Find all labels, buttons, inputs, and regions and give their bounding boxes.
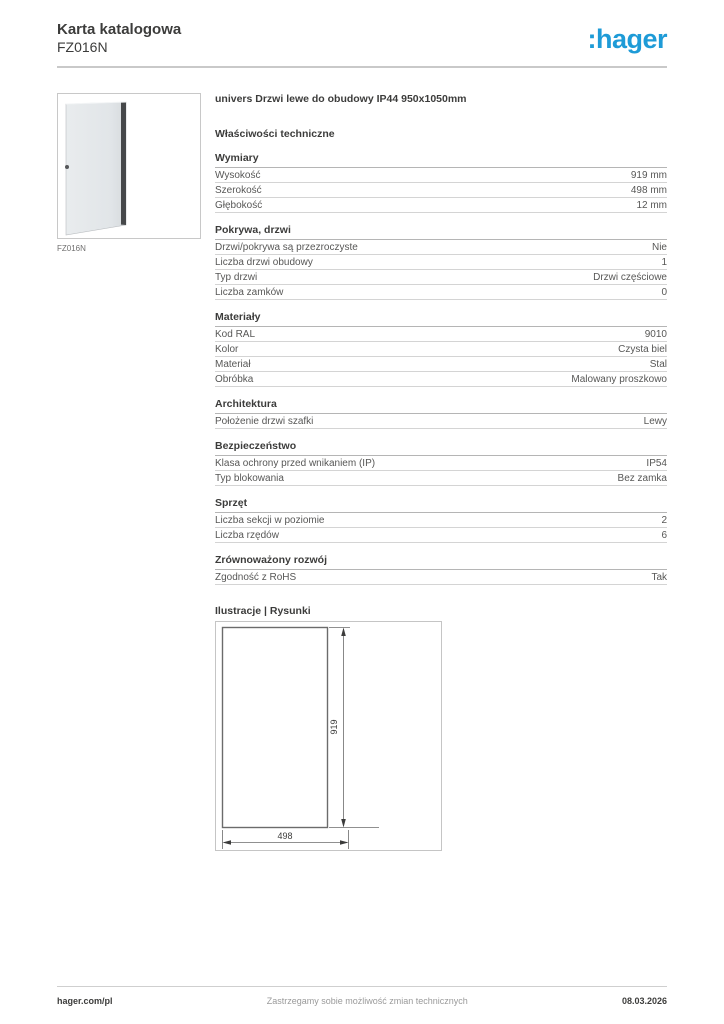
spec-label: Obróbka [215,374,253,385]
spec-label: Kolor [215,344,238,355]
spec-section: BezpieczeństwoKlasa ochrony przed wnikan… [215,440,667,486]
spec-label: Położenie drzwi szafki [215,416,313,427]
spec-label: Szerokość [215,185,262,196]
spec-section-title: Zrównoważony rozwój [215,554,667,570]
datasheet-page: Karta katalogowa FZ016N :hager [0,0,724,1024]
technical-drawing: 919 498 [215,621,442,851]
footer: hager.com/pl Zastrzegamy sobie możliwość… [57,986,667,1006]
door-panel-illustration [58,94,200,238]
spec-label: Liczba sekcji w poziomie [215,515,325,526]
details-column: univers Drzwi lewe do obudowy IP44 950x1… [215,93,667,851]
product-code: FZ016N [57,39,181,56]
spec-section: ArchitekturaPołożenie drzwi szafkiLewy [215,398,667,429]
footer-disclaimer: Zastrzegamy sobie możliwość zmian techni… [267,996,468,1006]
spec-label: Liczba rzędów [215,530,279,541]
spec-row: Typ drzwiDrzwi częściowe [215,270,667,285]
illustrations-heading: Ilustracje | Rysunki [215,605,667,618]
spec-row: ObróbkaMalowany proszkowo [215,372,667,387]
spec-row: Klasa ochrony przed wnikaniem (IP)IP54 [215,456,667,471]
spec-section: Pokrywa, drzwiDrzwi/pokrywa są przezrocz… [215,224,667,300]
spec-label: Kod RAL [215,329,255,340]
footer-row: hager.com/pl Zastrzegamy sobie możliwość… [57,996,667,1006]
spec-value: 9010 [645,329,667,340]
spec-label: Typ blokowania [215,473,284,484]
spec-row: Szerokość498 mm [215,183,667,198]
spec-row: Wysokość919 mm [215,168,667,183]
spec-value: 1 [661,257,667,268]
product-title: univers Drzwi lewe do obudowy IP44 950x1… [215,93,667,106]
spec-value: Bez zamka [618,473,667,484]
spec-value: Drzwi częściowe [593,272,667,283]
spec-value: Nie [652,242,667,253]
spec-section: MateriałyKod RAL9010KolorCzysta bielMate… [215,311,667,387]
spec-row: Kod RAL9010 [215,327,667,342]
main-content: FZ016N univers Drzwi lewe do obudowy IP4… [57,93,667,851]
spec-value: Stal [650,359,667,370]
product-image-column: FZ016N [57,93,201,851]
spec-section: Zrównoważony rozwójZgodność z RoHSTak [215,554,667,585]
spec-value: Lewy [644,416,667,427]
spec-value: 919 mm [631,170,667,181]
header-divider [57,66,667,68]
page-title: Karta katalogowa [57,21,181,39]
spec-label: Liczba drzwi obudowy [215,257,313,268]
footer-date: 08.03.2026 [622,996,667,1006]
spec-row: Liczba drzwi obudowy1 [215,255,667,270]
spec-row: Liczba sekcji w poziomie2 [215,513,667,528]
header-titles: Karta katalogowa FZ016N [57,21,181,56]
spec-row: Położenie drzwi szafkiLewy [215,414,667,429]
spec-label: Materiał [215,359,251,370]
footer-site-link[interactable]: hager.com/pl [57,996,113,1006]
spec-section-title: Architektura [215,398,667,414]
footer-divider [57,986,667,987]
specs-heading: Właściwości techniczne [215,128,667,141]
product-image-caption: FZ016N [57,244,201,253]
spec-label: Zgodność z RoHS [215,572,296,583]
spec-value: Malowany proszkowo [571,374,667,385]
spec-label: Wysokość [215,170,260,181]
spec-row: Typ blokowaniaBez zamka [215,471,667,486]
spec-section-title: Materiały [215,311,667,327]
spec-section-title: Wymiary [215,152,667,168]
spec-section-title: Pokrywa, drzwi [215,224,667,240]
spec-section: SprzętLiczba sekcji w poziomie2Liczba rz… [215,497,667,543]
spec-row: Drzwi/pokrywa są przezroczysteNie [215,240,667,255]
spec-value: Czysta biel [618,344,667,355]
spec-label: Głębokość [215,200,262,211]
spec-section: WymiaryWysokość919 mmSzerokość498 mmGłęb… [215,152,667,213]
spec-row: Głębokość12 mm [215,198,667,213]
spec-section-title: Sprzęt [215,497,667,513]
product-image [57,93,201,239]
spec-label: Liczba zamków [215,287,283,298]
spec-value: 498 mm [631,185,667,196]
spec-value: 0 [661,287,667,298]
hager-logo: :hager [587,24,667,54]
spec-value: IP54 [646,458,667,469]
spec-value: 12 mm [636,200,667,211]
spec-row: Liczba zamków0 [215,285,667,300]
spec-row: KolorCzysta biel [215,342,667,357]
drawing-width-dimension: 498 [277,831,292,841]
spec-section-title: Bezpieczeństwo [215,440,667,456]
spec-label: Klasa ochrony przed wnikaniem (IP) [215,458,375,469]
spec-value: Tak [651,572,667,583]
dimension-drawing: 919 498 [216,622,441,850]
spec-row: MateriałStal [215,357,667,372]
spec-row: Zgodność z RoHSTak [215,570,667,585]
specs-sections: WymiaryWysokość919 mmSzerokość498 mmGłęb… [215,152,667,585]
spec-value: 2 [661,515,667,526]
drawing-height-dimension: 919 [329,719,339,734]
spec-label: Drzwi/pokrywa są przezroczyste [215,242,358,253]
spec-label: Typ drzwi [215,272,257,283]
spec-value: 6 [661,530,667,541]
header: Karta katalogowa FZ016N :hager [57,21,667,56]
spec-row: Liczba rzędów6 [215,528,667,543]
